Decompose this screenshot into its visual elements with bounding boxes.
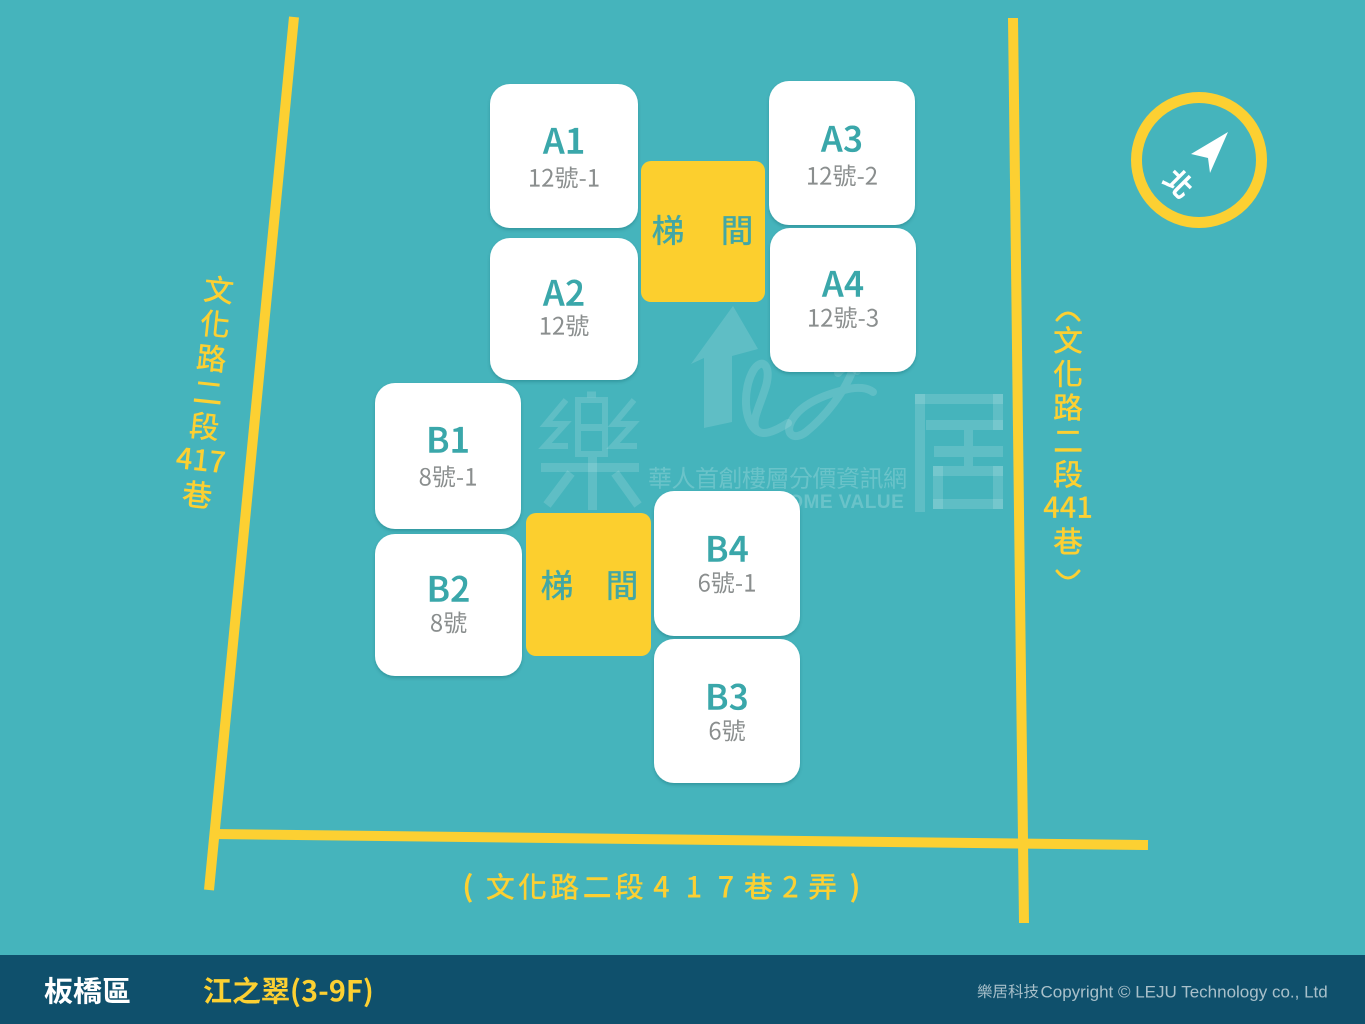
svg-text:Copyright © LEJU Technology co: Copyright © LEJU Technology co., Ltd [1041,983,1328,1002]
